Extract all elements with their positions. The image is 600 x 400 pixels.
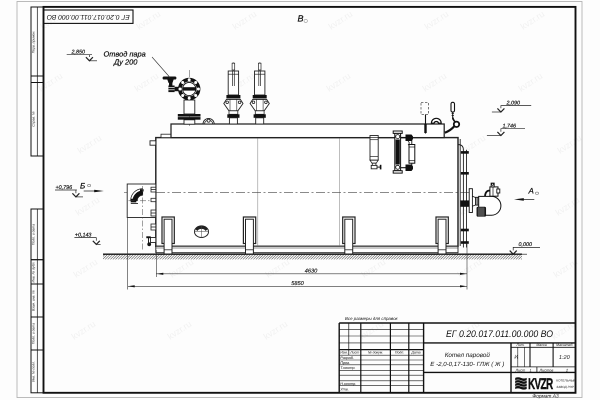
svg-text:Листов: Листов xyxy=(539,368,554,372)
svg-text:ЕГ 0.20.017.011.00.000 ВО: ЕГ 0.20.017.011.00.000 ВО xyxy=(46,13,130,20)
svg-text:kvzr.ru: kvzr.ru xyxy=(264,257,292,280)
svg-text:Перв. примен.: Перв. примен. xyxy=(32,31,36,54)
svg-text:kvzr.ru: kvzr.ru xyxy=(72,257,100,280)
svg-text:Взам. инв. №: Взам. инв. № xyxy=(32,290,36,311)
svg-text:Инв. № подл.: Инв. № подл. xyxy=(32,361,36,382)
svg-text:kvzr.ru: kvzr.ru xyxy=(168,257,196,280)
svg-text:KVZR: KVZR xyxy=(528,376,553,393)
svg-text:kvzr.ru: kvzr.ru xyxy=(456,257,484,280)
svg-text:В: В xyxy=(298,14,304,24)
svg-text:kvzr.ru: kvzr.ru xyxy=(423,9,451,32)
svg-text:Подп. и дата: Подп. и дата xyxy=(32,224,36,245)
svg-text:Справ. №: Справ. № xyxy=(32,111,36,127)
svg-text:+0,143: +0,143 xyxy=(75,232,92,238)
svg-text:kvzr.ru: kvzr.ru xyxy=(74,195,102,218)
svg-text:Котел паровой: Котел паровой xyxy=(445,352,491,359)
svg-text:Утв.: Утв. xyxy=(340,388,349,392)
svg-text:И: И xyxy=(514,355,518,361)
svg-text:№ докум.: № докум. xyxy=(368,350,383,354)
svg-text:Инв. № дубл.: Инв. № дубл. xyxy=(32,262,36,283)
svg-text:kvzr.ru: kvzr.ru xyxy=(327,9,355,32)
svg-text:Масса: Масса xyxy=(536,343,546,347)
svg-text:kvzr.ru: kvzr.ru xyxy=(554,195,582,218)
svg-text:Масштаб: Масштаб xyxy=(556,343,573,347)
svg-text:Лист: Лист xyxy=(515,368,526,372)
svg-text:5850: 5850 xyxy=(291,281,304,287)
svg-text:ЗАВОД РЭР: ЗАВОД РЭР xyxy=(556,385,575,389)
svg-text:kvzr.ru: kvzr.ru xyxy=(519,9,547,32)
svg-text:Подп.: Подп. xyxy=(395,350,404,354)
svg-text:kvzr.ru: kvzr.ru xyxy=(76,133,104,156)
svg-text:1: 1 xyxy=(530,368,532,372)
svg-text:kvzr.ru: kvzr.ru xyxy=(358,319,386,342)
svg-text:1:20: 1:20 xyxy=(559,355,571,361)
svg-text:КОТЕЛЬНЫЙ: КОТЕЛЬНЫЙ xyxy=(556,379,576,383)
svg-text:2,090: 2,090 xyxy=(506,100,521,106)
svg-text:Формат А3: Формат А3 xyxy=(532,394,559,400)
svg-text:kvzr.ru: kvzr.ru xyxy=(325,71,353,94)
svg-text:Т.контр.: Т.контр. xyxy=(340,366,355,370)
svg-text:Б: Б xyxy=(80,182,85,191)
svg-text:kvzr.ru: kvzr.ru xyxy=(133,71,161,94)
svg-text:kvzr.ru: kvzr.ru xyxy=(262,319,290,342)
svg-text:Пров.: Пров. xyxy=(340,361,350,365)
svg-text:ЕГ 0.20.017.011.00.000 ВО: ЕГ 0.20.017.011.00.000 ВО xyxy=(446,329,554,340)
svg-text:Лит.: Лит. xyxy=(515,343,524,347)
svg-text:4630: 4630 xyxy=(305,268,318,274)
svg-text:kvzr.ru: kvzr.ru xyxy=(135,9,163,32)
svg-text:А: А xyxy=(528,187,534,196)
svg-text:Лист: Лист xyxy=(349,350,359,354)
svg-text:+0,796: +0,796 xyxy=(56,185,73,191)
svg-text:kvzr.ru: kvzr.ru xyxy=(517,71,545,94)
svg-text:Изм.: Изм. xyxy=(340,350,347,354)
svg-text:Подп. и дата: Подп. и дата xyxy=(32,323,36,344)
svg-text:kvzr.ru: kvzr.ru xyxy=(70,319,98,342)
svg-text:Все размеры для справок: Все размеры для справок xyxy=(345,316,399,321)
svg-text:Н.контр.: Н.контр. xyxy=(340,382,356,386)
svg-text:1,746: 1,746 xyxy=(503,124,517,130)
svg-text:kvzr.ru: kvzr.ru xyxy=(231,9,259,32)
svg-text:2,850: 2,850 xyxy=(71,50,86,56)
svg-text:kvzr.ru: kvzr.ru xyxy=(166,319,194,342)
svg-text:kvzr.ru: kvzr.ru xyxy=(360,257,388,280)
svg-text:Разраб.: Разраб. xyxy=(340,356,354,360)
svg-text:Ду 200: Ду 200 xyxy=(113,58,138,67)
svg-text:kvzr.ru: kvzr.ru xyxy=(550,319,578,342)
svg-text:Е -2,0-0,17-130- ГЛЖ ( Ж ): Е -2,0-0,17-130- ГЛЖ ( Ж ) xyxy=(430,361,504,368)
svg-text:Дата: Дата xyxy=(410,350,420,354)
svg-text:kvzr.ru: kvzr.ru xyxy=(421,71,449,94)
svg-text:kvzr.ru: kvzr.ru xyxy=(556,133,584,156)
svg-text:0,000: 0,000 xyxy=(519,242,533,248)
